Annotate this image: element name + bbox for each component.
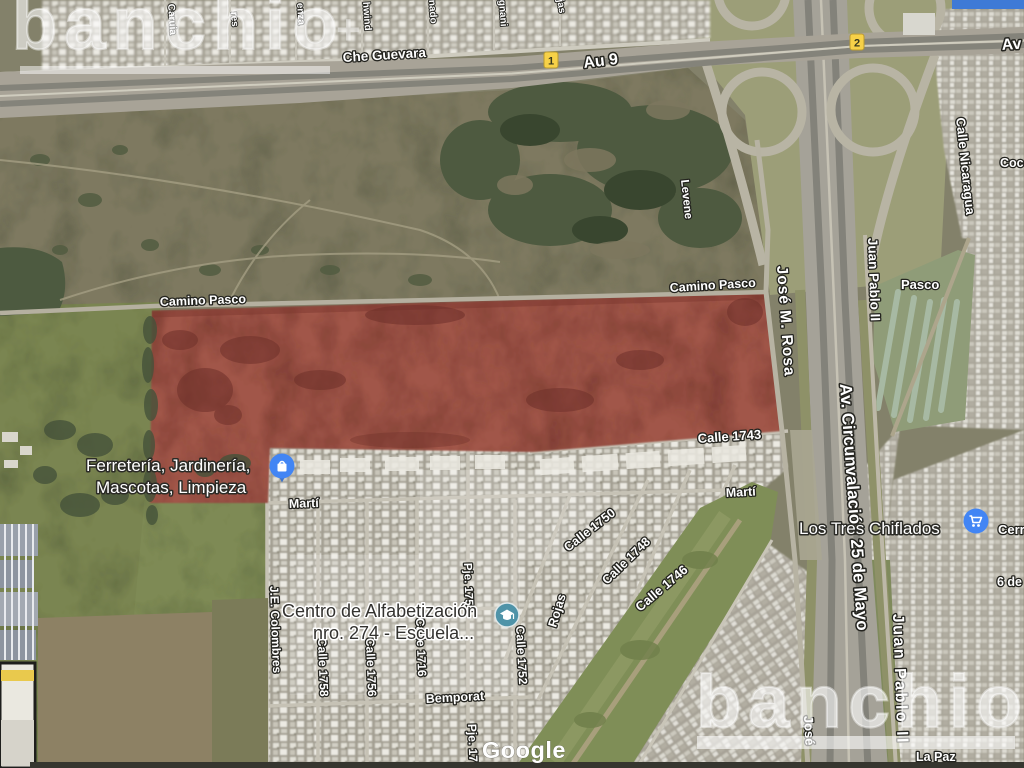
svg-text:banchio: banchio (12, 0, 345, 65)
svg-text:Martí: Martí (289, 496, 320, 511)
svg-text:Cerr: Cerr (998, 522, 1024, 537)
svg-text:hwind: hwind (360, 1, 373, 31)
svg-text:La Paz: La Paz (916, 750, 956, 764)
svg-text:gnani: gnani (496, 0, 509, 27)
svg-text:nro. 274 - Escuela...: nro. 274 - Escuela... (313, 623, 474, 643)
svg-text:Coc: Coc (1000, 156, 1024, 170)
svg-text:Calle 1756: Calle 1756 (363, 638, 379, 697)
svg-text:Martí: Martí (725, 484, 756, 500)
svg-text:nado: nado (426, 0, 439, 24)
svg-text:Juan Pablo II: Juan Pablo II (865, 238, 883, 322)
svg-text:Los Tres Chiflados: Los Tres Chiflados (799, 519, 940, 538)
svg-text:banchio: banchio (696, 660, 1024, 743)
svg-text:Mascotas, Limpieza: Mascotas, Limpieza (96, 478, 247, 497)
svg-text:6 de: 6 de (997, 575, 1022, 589)
svg-text:2: 2 (854, 38, 860, 50)
svg-text:Ferretería, Jardinería,: Ferretería, Jardinería, (86, 456, 250, 475)
svg-text:Pje. 17: Pje. 17 (465, 724, 480, 763)
svg-text:Calle 1758: Calle 1758 (315, 638, 331, 697)
svg-text:Av: Av (1001, 36, 1022, 54)
svg-text:+: + (336, 6, 361, 53)
svg-text:Pasco: Pasco (901, 277, 939, 292)
svg-text:Centro de Alfabetización: Centro de Alfabetización (282, 601, 477, 621)
svg-text:Google: Google (482, 737, 566, 763)
svg-text:1: 1 (548, 56, 554, 68)
